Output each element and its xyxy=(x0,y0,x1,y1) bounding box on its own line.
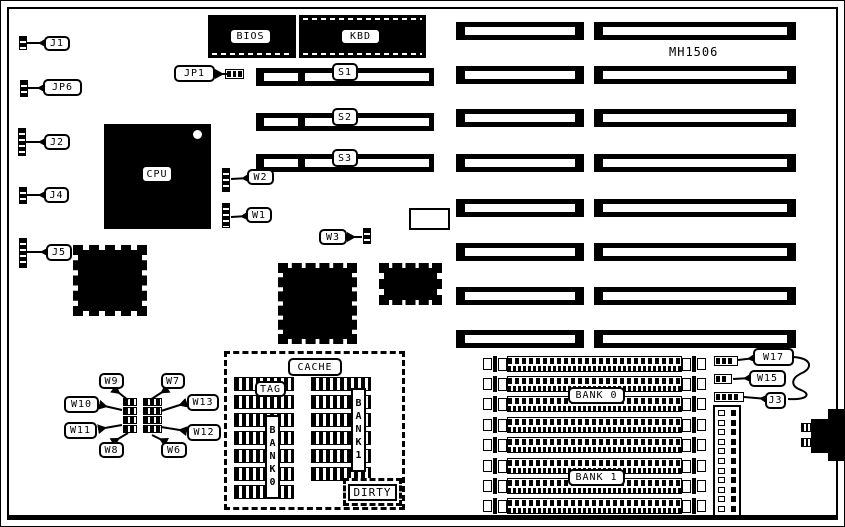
motherboard-diagram: J1 JP6 J2 J4 J5 JP1 W2 W1 W3 BIOS KBD CP… xyxy=(0,0,845,527)
memory-bank1-label: BANK 1 xyxy=(568,469,625,486)
jumper-label-w2: W2 xyxy=(247,169,274,185)
cache-bank0-label: BANK0 xyxy=(265,415,280,499)
cpu-chip-label: CPU xyxy=(141,165,173,183)
jumper-label-w10: W10 xyxy=(64,396,99,413)
jumper-label-w3: W3 xyxy=(319,229,347,245)
jumper-label-w13: W13 xyxy=(187,394,219,411)
jumper-label-w12: W12 xyxy=(187,424,221,441)
jumper-label-j2: J2 xyxy=(44,134,70,150)
slot-label-s1: S1 xyxy=(332,63,358,81)
annotation-lines xyxy=(1,1,845,527)
cache-bank1-label: BANK1 xyxy=(351,388,366,472)
jumper-label-w7: W7 xyxy=(161,373,185,389)
jumper-label-j1: J1 xyxy=(44,36,70,51)
slot-label-s2: S2 xyxy=(332,108,358,126)
jumper-label-j3: J3 xyxy=(765,392,786,409)
jumper-label-w1: W1 xyxy=(246,207,272,223)
dirty-tag-chip: DIRTY xyxy=(343,478,402,506)
cache-tag-label: TAG xyxy=(255,381,286,397)
jumper-label-j4: J4 xyxy=(44,187,69,203)
jumper-label-w17: W17 xyxy=(753,348,794,366)
memory-bank0-label: BANK 0 xyxy=(568,387,625,404)
jumper-label-jp6: JP6 xyxy=(43,79,82,96)
jumper-label-w11: W11 xyxy=(64,422,97,439)
jumper-label-w8: W8 xyxy=(99,442,124,458)
cache-area-label: CACHE xyxy=(288,358,342,376)
jumper-label-w9: W9 xyxy=(99,373,124,389)
dirty-chip-label: DIRTY xyxy=(348,484,396,501)
bios-chip-label: BIOS xyxy=(229,28,272,45)
jumper-label-w6: W6 xyxy=(161,442,187,458)
jumper-label-jp1: JP1 xyxy=(174,65,215,82)
jumper-label-w15: W15 xyxy=(749,370,786,387)
kbd-chip-label: KBD xyxy=(340,28,381,45)
jumper-label-j5: J5 xyxy=(46,244,72,261)
slot-label-s3: S3 xyxy=(332,149,358,167)
